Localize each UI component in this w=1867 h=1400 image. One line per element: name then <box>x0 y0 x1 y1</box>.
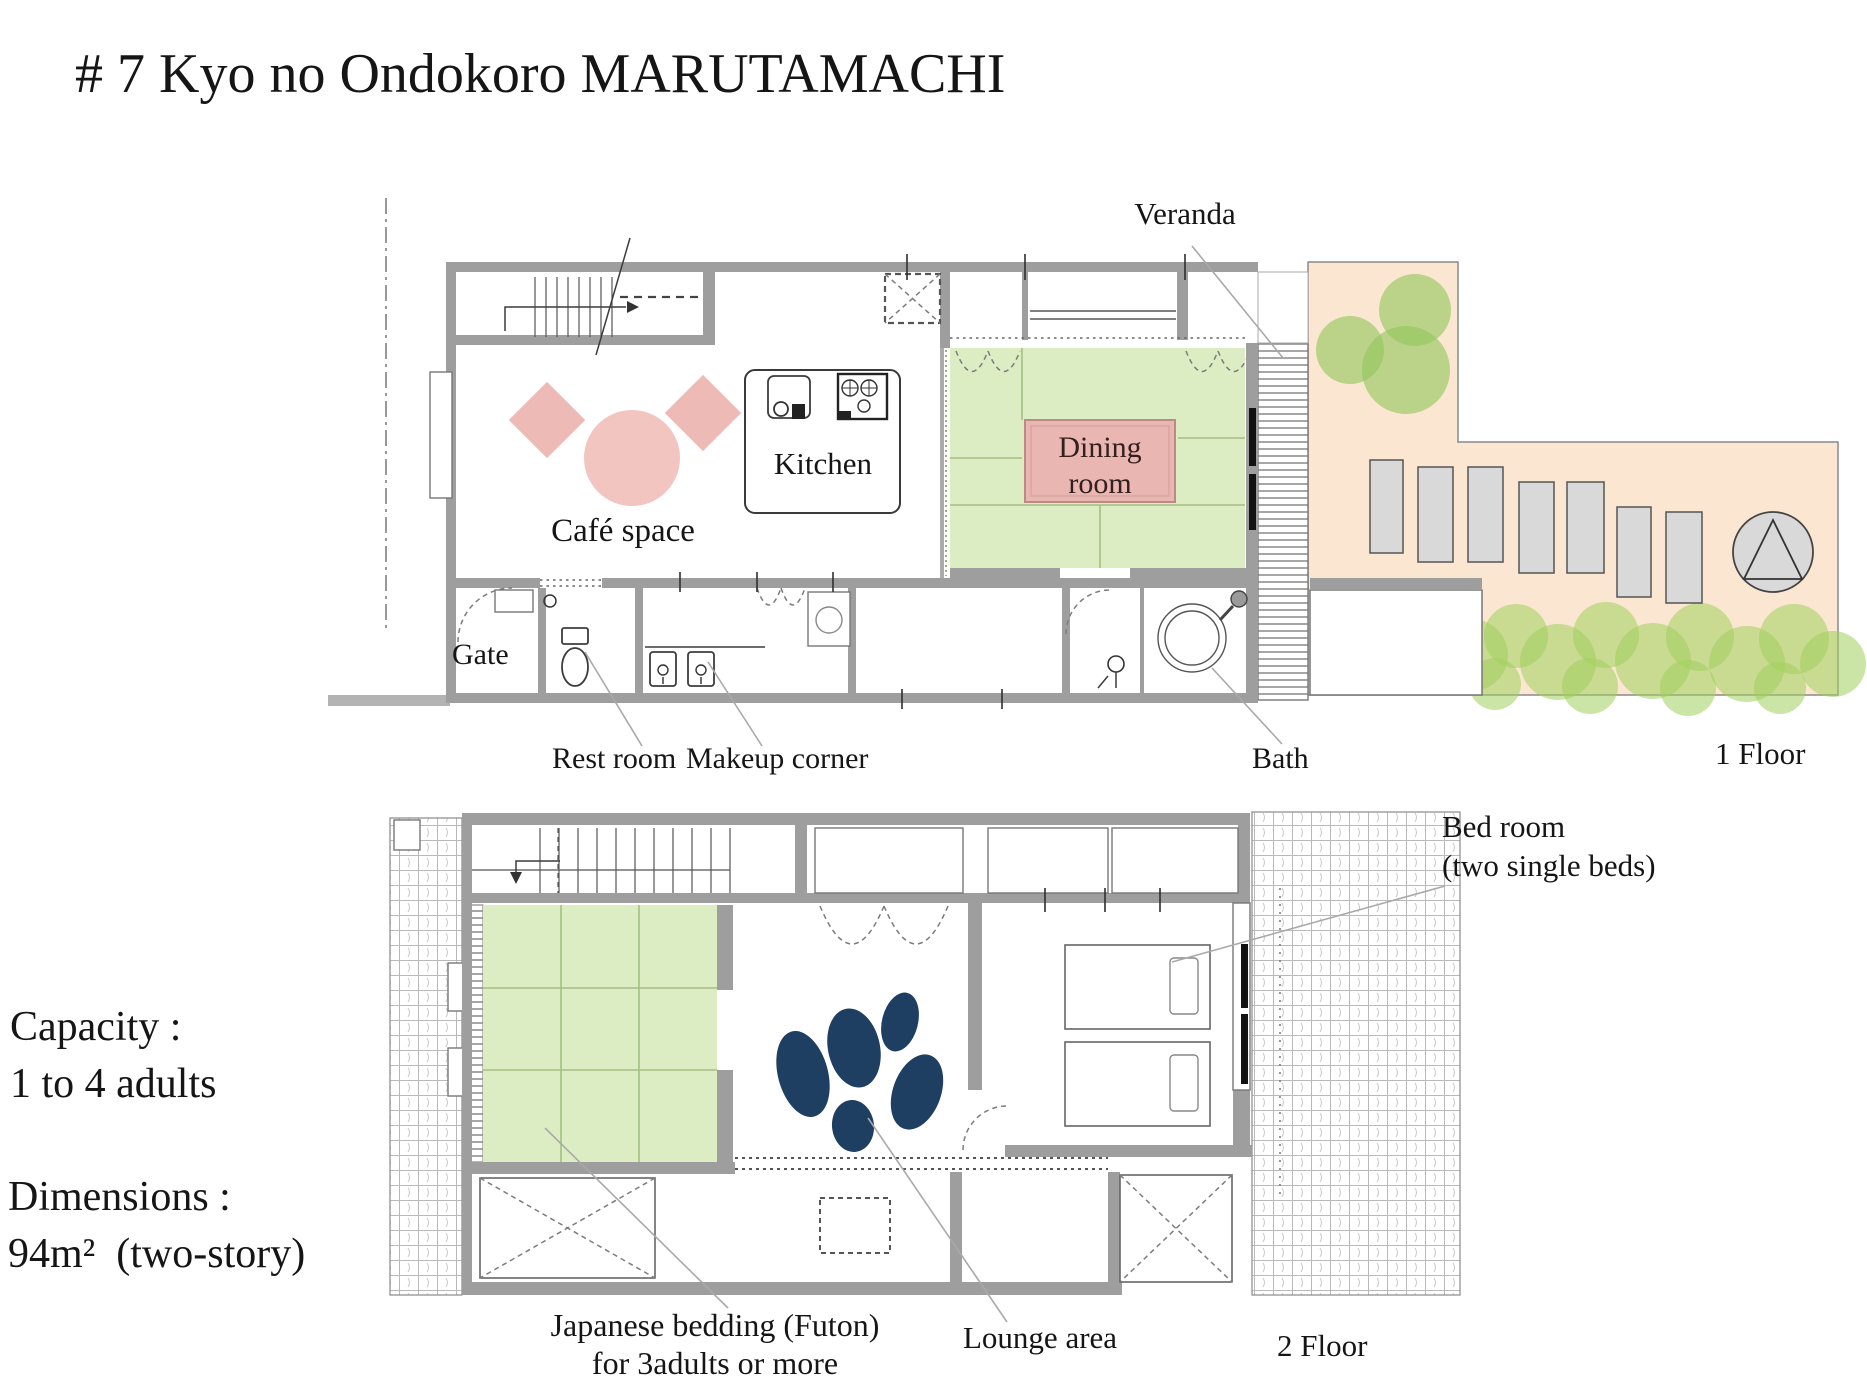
curtain-arcs <box>820 906 948 944</box>
window-lines <box>1030 311 1176 319</box>
futon-label: Japanese bedding (Futon)for 3adults or m… <box>500 1306 930 1383</box>
sink-icon <box>650 652 676 686</box>
window-frame-bar <box>1241 944 1248 1008</box>
bed-icon <box>1065 1042 1210 1126</box>
window-frame-bar <box>1241 1014 1248 1084</box>
toilet-icon <box>544 595 588 686</box>
capacity-value: 1 to 4 adults <box>10 1060 217 1108</box>
floorplan-canvas: # 7 Kyo no Ondokoro MARUTAMACHI Veranda … <box>0 0 1867 1400</box>
opening-dotted-lines <box>735 1158 1108 1169</box>
lounge-area-label: Lounge area <box>963 1320 1117 1356</box>
noren-curtain-arcs <box>757 588 805 605</box>
tree-icon <box>1362 326 1450 414</box>
top-closet <box>988 828 1108 893</box>
floor2-label: 2 Floor <box>1277 1328 1367 1364</box>
floor1-label: 1 Floor <box>1715 736 1805 772</box>
page-title: # 7 Kyo no Ondokoro MARUTAMACHI <box>75 42 1005 106</box>
roof-corner-box <box>394 820 420 850</box>
bedroom-label: Bed room(two single beds) <box>1442 808 1656 886</box>
dimensions-label: Dimensions : <box>8 1173 231 1221</box>
stove-icon <box>838 374 887 419</box>
makeup-leader <box>708 662 762 746</box>
closet-x-icon <box>480 1178 655 1278</box>
futon-tatami <box>483 905 717 1162</box>
garden-room <box>1310 590 1482 695</box>
kitchen-label: Kitchen <box>748 446 898 482</box>
capacity-label: Capacity : <box>10 1003 181 1051</box>
window-frame-bar <box>1249 474 1256 530</box>
sink-icon <box>688 652 714 686</box>
makeup-corner-label: Makeup corner <box>686 742 868 777</box>
cafe-space-label: Café space <box>513 513 733 551</box>
veranda-label: Veranda <box>1100 196 1270 232</box>
closet-x-icon <box>885 274 940 323</box>
bathtub-icon <box>1158 591 1247 672</box>
dimensions-value: 94m² (two-story) <box>8 1230 305 1278</box>
veranda-upper-gap <box>1258 272 1308 343</box>
shower-icon <box>1098 656 1124 688</box>
stair-icon <box>472 828 730 893</box>
window-frame-bar <box>1249 408 1256 466</box>
shower-door-arc <box>1066 590 1110 634</box>
rest-room-label: Rest room <box>552 742 676 777</box>
cafe-table <box>584 410 680 506</box>
floor2-plan <box>390 812 1460 1322</box>
gate-cabinet <box>495 590 533 612</box>
dining-room-label: Diningroom <box>1025 430 1175 502</box>
roof-right <box>1252 812 1460 1295</box>
bedroom-door-arc <box>963 1106 1007 1150</box>
beanbag-icon <box>767 989 952 1155</box>
sink-icon <box>768 376 810 419</box>
garden-room-wall <box>1310 578 1482 590</box>
washer-icon <box>808 592 850 646</box>
stone-circle-icon <box>1733 512 1813 592</box>
veranda-deck <box>1258 343 1308 700</box>
top-closet <box>815 828 963 893</box>
floor-hatch-dashed <box>820 1198 890 1253</box>
closet-x-icon <box>1120 1175 1232 1282</box>
gate-label: Gate <box>452 638 509 673</box>
street-edge <box>328 695 450 706</box>
cafe-chair <box>509 382 585 458</box>
bay-window <box>430 372 452 498</box>
bath-label: Bath <box>1252 742 1309 777</box>
top-closet <box>1112 828 1238 893</box>
plan-drawing <box>0 0 1867 1400</box>
